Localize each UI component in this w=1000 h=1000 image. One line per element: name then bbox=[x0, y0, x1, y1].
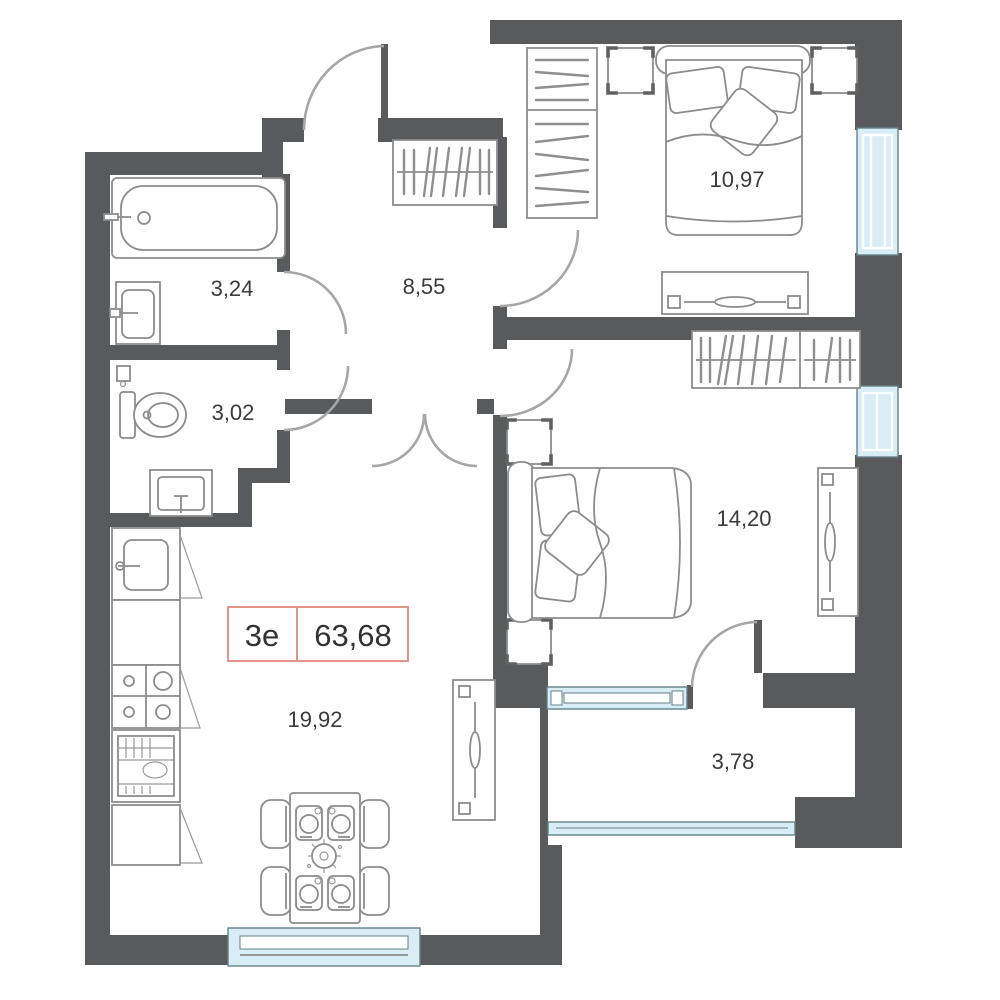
kitchen-counter bbox=[112, 600, 180, 665]
living-double-door-arc-left bbox=[372, 414, 424, 466]
nightstand bbox=[608, 48, 653, 93]
wc-door-arc bbox=[284, 366, 348, 430]
wall bbox=[110, 345, 290, 360]
wall bbox=[238, 483, 252, 527]
living-double-door-arc-right bbox=[425, 414, 477, 466]
window-kitchen-living bbox=[228, 928, 420, 966]
room-label-bedroom-2: 14,20 bbox=[716, 506, 771, 531]
wall bbox=[262, 118, 304, 142]
dresser bbox=[818, 468, 858, 616]
chair bbox=[359, 800, 389, 848]
stove bbox=[112, 665, 200, 728]
room-label-wc: 3,02 bbox=[212, 400, 255, 425]
bedroom-2-furniture bbox=[507, 331, 860, 664]
hallway-wardrobe bbox=[393, 140, 497, 205]
wall bbox=[795, 797, 902, 848]
bedroom-1-door-arc bbox=[500, 230, 578, 306]
floor-plan-canvas: 3,24 3,02 8,55 10,97 14,20 19,92 3,78 3е… bbox=[0, 0, 1000, 1000]
wall bbox=[763, 673, 902, 708]
kitchen-sink-unit bbox=[112, 528, 202, 600]
wall bbox=[490, 20, 902, 44]
dishwasher bbox=[112, 730, 180, 802]
bed-double bbox=[656, 46, 810, 235]
dining-table bbox=[290, 793, 360, 923]
dresser bbox=[662, 272, 808, 314]
kitchen-furniture bbox=[112, 528, 202, 865]
entrance-door-arc bbox=[304, 46, 384, 130]
dining-set bbox=[261, 793, 389, 923]
wall bbox=[238, 468, 290, 483]
balcony-door-leaf bbox=[754, 620, 762, 673]
chair bbox=[261, 800, 291, 848]
chair bbox=[261, 867, 291, 915]
floor-plan: 3,24 3,02 8,55 10,97 14,20 19,92 3,78 3е… bbox=[0, 0, 1000, 1000]
balcony-glazing bbox=[548, 822, 795, 835]
wall bbox=[277, 430, 290, 470]
balcony-door-arc bbox=[692, 622, 757, 687]
unit-total-area: 63,68 bbox=[314, 618, 392, 653]
wall bbox=[687, 685, 693, 709]
wc-sink bbox=[150, 470, 212, 516]
room-label-hallway: 8,55 bbox=[403, 274, 446, 299]
bedroom-1-furniture bbox=[527, 46, 857, 314]
wall bbox=[855, 253, 902, 388]
wall bbox=[85, 152, 110, 965]
wall bbox=[277, 330, 290, 347]
wall bbox=[85, 152, 283, 175]
window-bedroom-2 bbox=[857, 386, 898, 457]
chair bbox=[359, 867, 389, 915]
wall bbox=[855, 20, 902, 130]
kitchen-cabinet bbox=[112, 805, 202, 865]
wall bbox=[277, 358, 290, 370]
bathroom-door-arc bbox=[284, 272, 346, 334]
bathroom-furniture bbox=[104, 178, 285, 344]
toilet bbox=[117, 366, 186, 438]
wc-furniture bbox=[117, 366, 212, 516]
entrance-door-leaf bbox=[381, 44, 388, 130]
nightstand bbox=[812, 48, 857, 93]
bathroom-sink bbox=[110, 282, 160, 344]
bedroom-2-door-arc bbox=[500, 349, 572, 416]
bed-double bbox=[508, 462, 691, 622]
bedroom-1-wardrobe bbox=[527, 48, 597, 218]
living-dresser bbox=[453, 680, 495, 820]
unit-info-box: 3е 63,68 bbox=[228, 607, 408, 661]
wall bbox=[477, 399, 494, 414]
wall bbox=[378, 118, 503, 142]
wall bbox=[85, 935, 228, 965]
nightstand bbox=[507, 620, 551, 664]
bathtub bbox=[104, 178, 285, 258]
nightstand bbox=[507, 420, 551, 464]
room-label-bathroom: 3,24 bbox=[211, 276, 254, 301]
room-label-bedroom-1: 10,97 bbox=[709, 167, 764, 192]
unit-type-label: 3е bbox=[245, 618, 279, 653]
wall bbox=[540, 845, 562, 940]
window-bedroom-2-balcony bbox=[547, 687, 687, 709]
wall bbox=[493, 415, 507, 662]
room-label-kitchen-living: 19,92 bbox=[287, 707, 342, 732]
wall bbox=[855, 455, 902, 675]
wall bbox=[493, 660, 548, 708]
bedroom-2-wardrobe bbox=[692, 331, 860, 388]
window-bedroom-1 bbox=[857, 128, 898, 255]
wall bbox=[420, 935, 562, 965]
room-label-balcony: 3,78 bbox=[712, 749, 755, 774]
